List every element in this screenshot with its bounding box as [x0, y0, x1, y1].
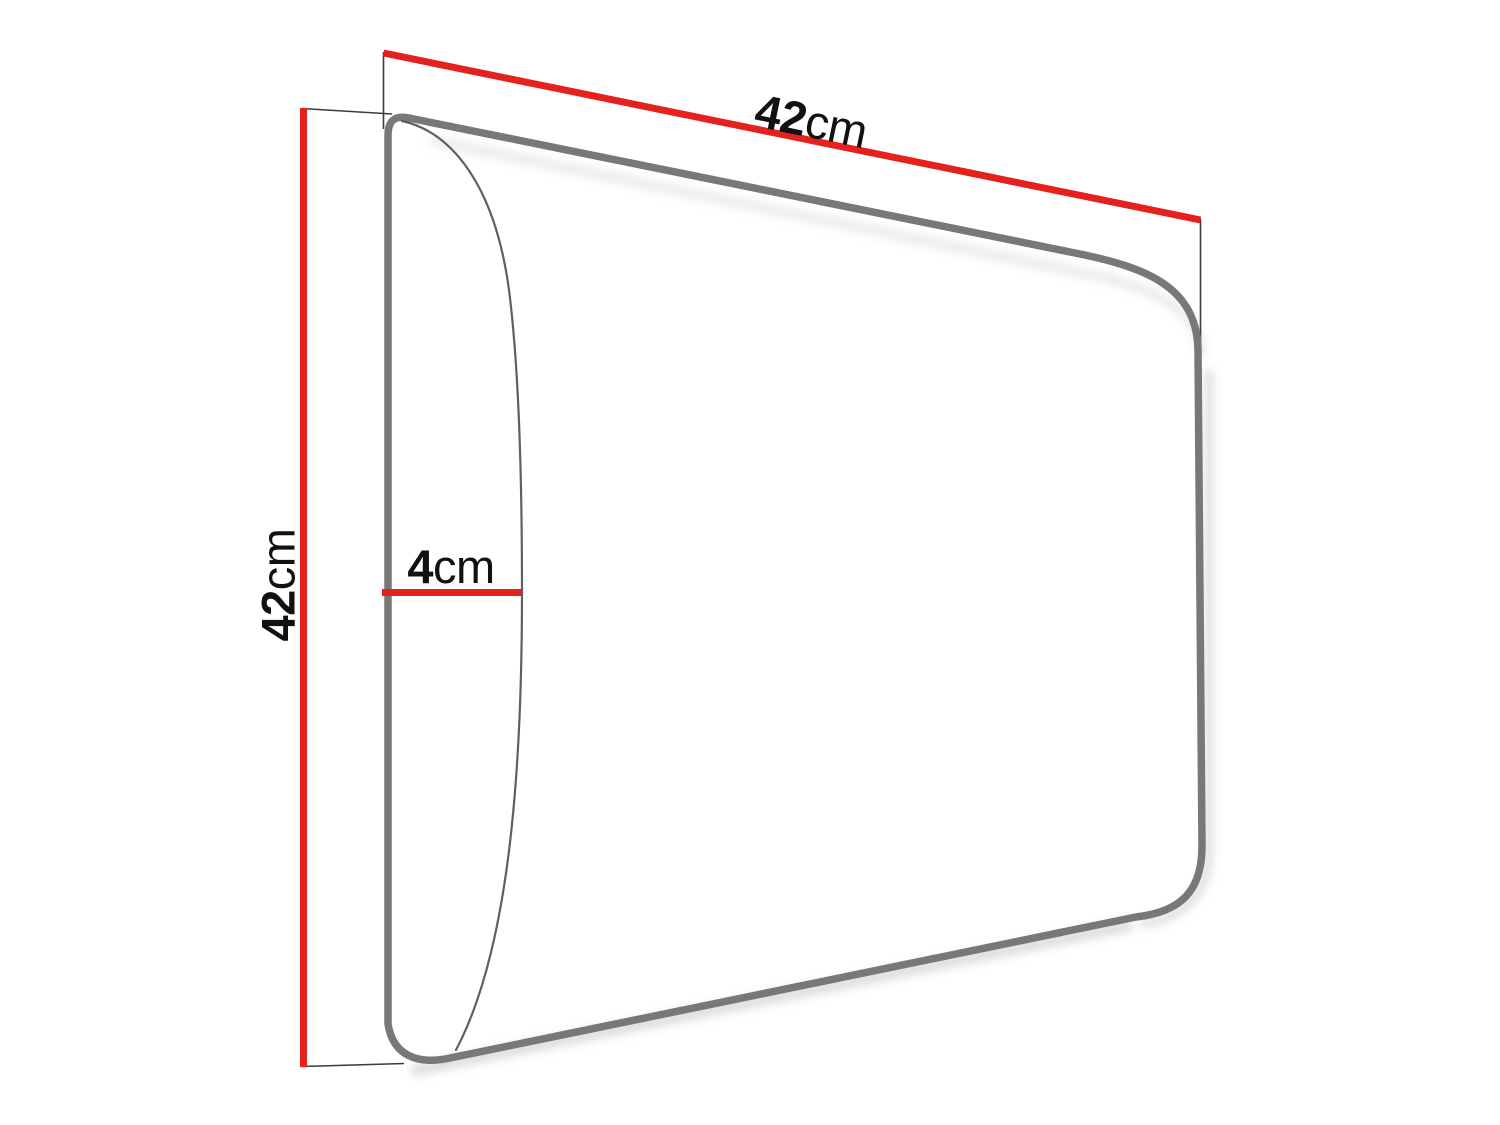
height-unit: cm — [252, 529, 305, 591]
panel-drawing — [0, 0, 1500, 1125]
thickness-unit: cm — [433, 540, 495, 593]
thickness-value: 4 — [407, 540, 433, 593]
panel-outline — [388, 117, 1202, 1060]
top-edge-shadow — [430, 140, 1202, 356]
panel-shadows — [412, 140, 1209, 1071]
thickness-dimension-label: 4cm — [398, 543, 504, 590]
bottom-edge-shadow — [412, 925, 1132, 1071]
dimension-diagram: 42cm 42cm 4cm — [0, 0, 1500, 1125]
extension-line-left-bottom — [302, 1064, 404, 1067]
extension-line-left-top — [302, 109, 392, 115]
height-dimension-label: 42cm — [255, 530, 302, 642]
height-value: 42 — [252, 590, 305, 641]
